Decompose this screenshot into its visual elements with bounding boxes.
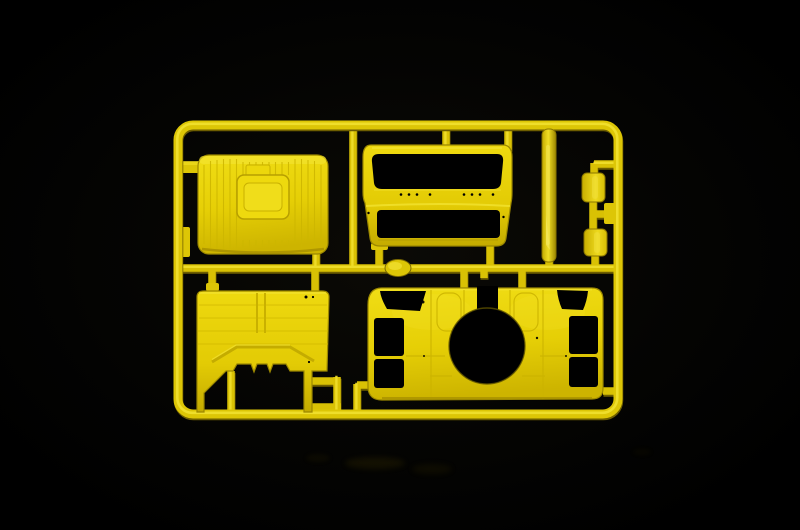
grille-opening: [377, 210, 500, 238]
roof-hatch-inner: [244, 183, 282, 211]
right-window-cutout: [557, 290, 588, 310]
mirror-lower-part: Lower mirror housing block: [584, 229, 607, 256]
windshield-opening: [372, 154, 503, 189]
mirror-upper-part: Upper mirror housing block: [582, 173, 605, 202]
left-window-cutout: [380, 291, 426, 311]
cab-floor-side-part: Cab side walls / floor piece with large …: [368, 286, 603, 400]
sprue-photo: Faint reflection of the sprue on the dar…: [0, 0, 800, 530]
photo-canvas: Faint reflection of the sprue on the dar…: [0, 0, 800, 530]
trim-strip-part: Long narrow trim strip (sun visor bar): [542, 129, 556, 262]
roof-panel-part: Cab roof panel with ribbed surface and r…: [198, 155, 328, 254]
cab-front-part: Cab front panel with windshield opening,…: [363, 145, 512, 246]
